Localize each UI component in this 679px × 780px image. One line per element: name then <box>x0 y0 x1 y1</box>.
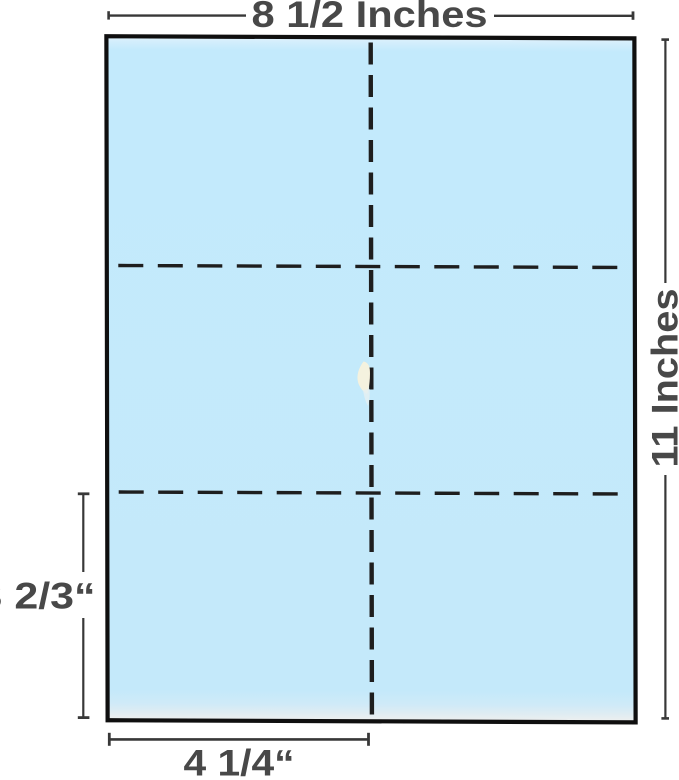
svg-text:4 1/4“: 4 1/4“ <box>184 743 295 780</box>
svg-text:11 Inches: 11 Inches <box>645 289 679 468</box>
svg-text:3 2/3“: 3 2/3“ <box>0 576 96 617</box>
svg-text:8 1/2 Inches: 8 1/2 Inches <box>252 0 488 35</box>
